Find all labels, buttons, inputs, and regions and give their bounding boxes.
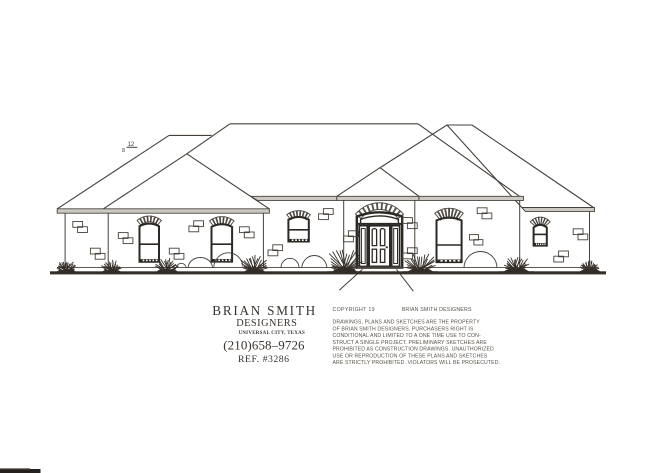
svg-text:COPYRIGHT 19: COPYRIGHT 19 xyxy=(333,307,375,313)
svg-text:BRIAN SMITH DESIGNERS: BRIAN SMITH DESIGNERS xyxy=(402,307,472,313)
svg-text:REF. #3286: REF. #3286 xyxy=(238,354,290,365)
svg-text:STRUCT A SINGLE PROJECT. PREL: STRUCT A SINGLE PROJECT. PRELIMINARY SKE… xyxy=(333,340,488,346)
svg-text:PROHIBITED AS CONSTRUCTION DRA: PROHIBITED AS CONSTRUCTION DRAWINGS. UNA… xyxy=(333,347,495,353)
svg-text:BRIAN SMITH: BRIAN SMITH xyxy=(212,303,317,318)
svg-text:ARE STRICTLY PROHIBITED. VIOL: ARE STRICTLY PROHIBITED. VIOLATORS WILL … xyxy=(333,360,501,366)
svg-text:(210)658–9726: (210)658–9726 xyxy=(223,338,305,353)
svg-text:8: 8 xyxy=(122,148,125,154)
svg-text:UNIVERSAL CITY, TEXAS: UNIVERSAL CITY, TEXAS xyxy=(239,331,306,336)
svg-text:DRAWINGS, PLANS AND SKETCHES A: DRAWINGS, PLANS AND SKETCHES ARE THE PRO… xyxy=(333,320,481,326)
svg-text:OF BRIAN SMITH DESIGNERS. PUR: OF BRIAN SMITH DESIGNERS. PURCHASERS RIG… xyxy=(333,326,474,332)
svg-text:USE OR REPRODUCTION OF THESE P: USE OR REPRODUCTION OF THESE PLANS AND S… xyxy=(333,353,488,359)
svg-text:CONDITIONAL AND LIMITED TO A O: CONDITIONAL AND LIMITED TO A ONE TIME US… xyxy=(333,333,481,339)
svg-text:DESIGNERS: DESIGNERS xyxy=(236,318,297,329)
